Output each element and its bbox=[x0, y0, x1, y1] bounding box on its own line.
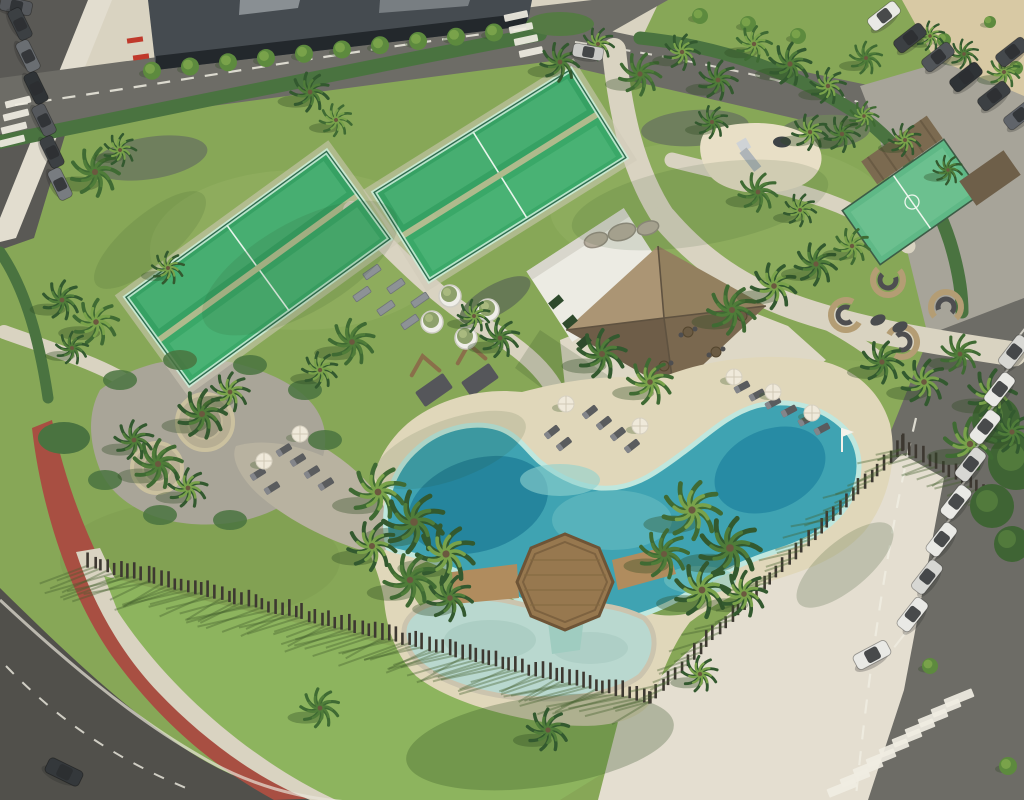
street-tree-highlight bbox=[694, 10, 703, 19]
terrace-table bbox=[711, 347, 721, 357]
shallow-water bbox=[520, 464, 600, 496]
street-tree-highlight bbox=[259, 51, 269, 61]
terrace-chair bbox=[693, 327, 698, 332]
street-tree-highlight bbox=[411, 34, 421, 44]
terrace-chair bbox=[707, 353, 712, 358]
hedge-blob bbox=[526, 12, 594, 36]
street-tree-highlight bbox=[449, 30, 459, 40]
plaza-shrub bbox=[233, 355, 267, 375]
terrace-table bbox=[683, 327, 693, 337]
plaza-shrub bbox=[88, 470, 122, 490]
plaza-shrub bbox=[143, 505, 177, 525]
olive-tree-highlight bbox=[443, 288, 451, 296]
palm-crown bbox=[92, 169, 98, 175]
car-glass bbox=[582, 46, 595, 59]
street-tree-highlight bbox=[792, 30, 801, 39]
street-tree-highlight bbox=[1001, 759, 1011, 769]
olive-tree-highlight bbox=[459, 330, 467, 338]
olive-tree-highlight bbox=[425, 314, 433, 322]
street-tree-highlight bbox=[487, 26, 497, 36]
deck-octagon bbox=[517, 534, 613, 630]
aerial-resort-render bbox=[0, 0, 1024, 800]
street-tree-highlight bbox=[183, 60, 193, 70]
street-tree-highlight bbox=[145, 64, 155, 74]
street-tree-highlight bbox=[985, 17, 992, 24]
scene-canvas bbox=[0, 0, 1024, 800]
plaza-shrub bbox=[308, 430, 342, 450]
dense-tree-highlight bbox=[976, 490, 998, 512]
street-tree-highlight bbox=[742, 18, 751, 27]
street-tree-highlight bbox=[373, 38, 383, 48]
street-tree-highlight bbox=[924, 660, 933, 669]
street-tree-highlight bbox=[335, 43, 345, 53]
street-tree-highlight bbox=[297, 47, 307, 57]
dense-tree-highlight bbox=[998, 530, 1016, 548]
hedge-blob bbox=[38, 422, 90, 454]
street-tree-highlight bbox=[221, 55, 231, 65]
terrace-chair bbox=[721, 347, 726, 352]
terrace-chair bbox=[679, 333, 684, 338]
plaza-shrub bbox=[103, 370, 137, 390]
terrace-chair bbox=[669, 361, 674, 366]
plaza-shrub bbox=[163, 350, 197, 370]
plaza-shrub bbox=[213, 510, 247, 530]
